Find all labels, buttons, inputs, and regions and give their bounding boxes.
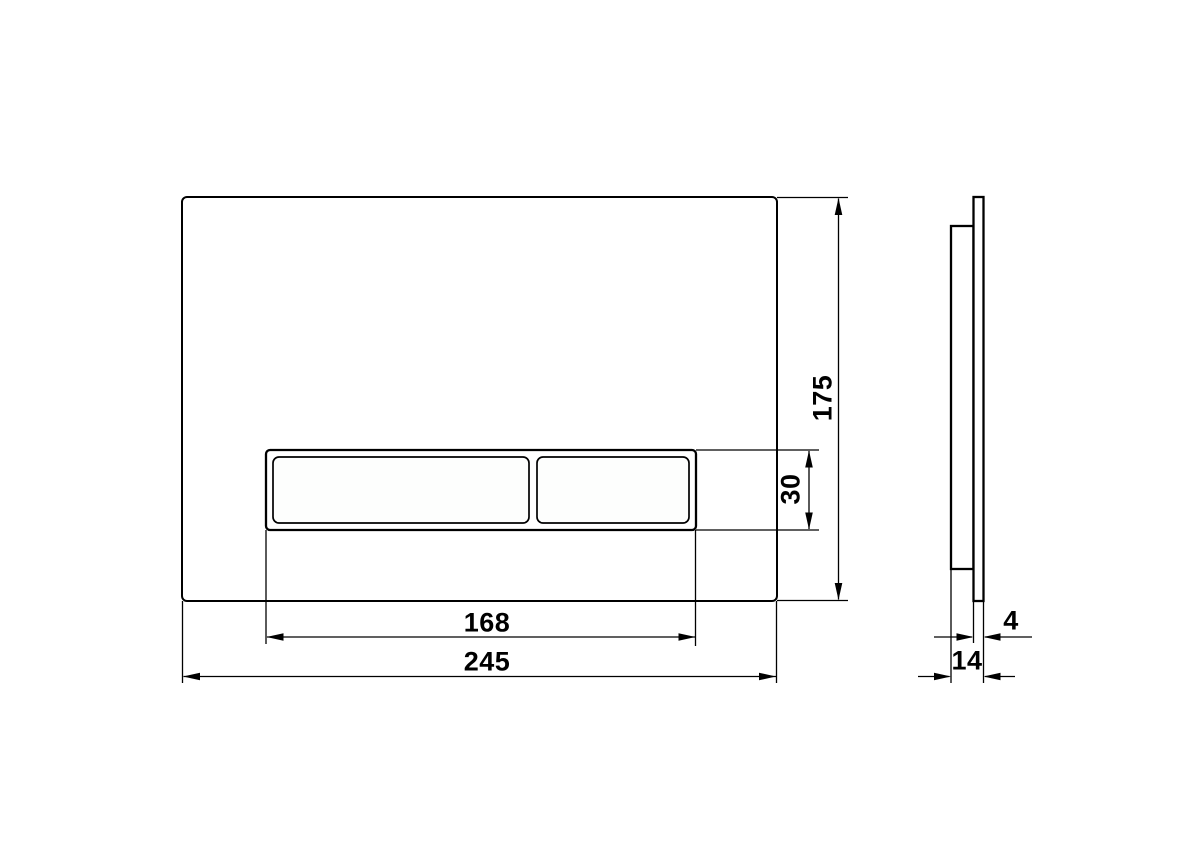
small-flush-button	[537, 457, 689, 523]
side-view-panel	[974, 197, 984, 601]
arrow-down-icon	[805, 513, 813, 530]
arrow-right-icon	[957, 633, 974, 641]
side-view	[951, 197, 984, 601]
arrow-right-icon	[759, 673, 776, 681]
arrow-up-icon	[835, 198, 843, 215]
dim-label-plate-width: 245	[464, 649, 511, 676]
plate-outline	[182, 197, 777, 601]
arrow-left-icon	[984, 633, 1001, 641]
dim-label-plate-height: 175	[810, 375, 837, 422]
arrow-up-icon	[805, 451, 813, 468]
side-view-frame	[951, 226, 974, 569]
arrow-left-icon	[984, 673, 1001, 681]
arrow-down-icon	[835, 583, 843, 600]
dim-label-recess-width: 168	[464, 610, 511, 637]
arrow-right-icon	[934, 673, 951, 681]
front-view	[182, 197, 777, 601]
arrow-right-icon	[679, 633, 696, 641]
technical-drawing-canvas: 168 245 30 175 4 14	[0, 0, 1200, 851]
dim-label-recess-height: 30	[778, 473, 805, 504]
flush-plate-drawing	[0, 0, 1200, 851]
large-flush-button	[273, 457, 529, 523]
dim-label-total-depth: 14	[951, 648, 982, 675]
arrow-left-icon	[183, 673, 200, 681]
dim-label-panel-thickness: 4	[1003, 608, 1019, 635]
arrow-left-icon	[267, 633, 284, 641]
